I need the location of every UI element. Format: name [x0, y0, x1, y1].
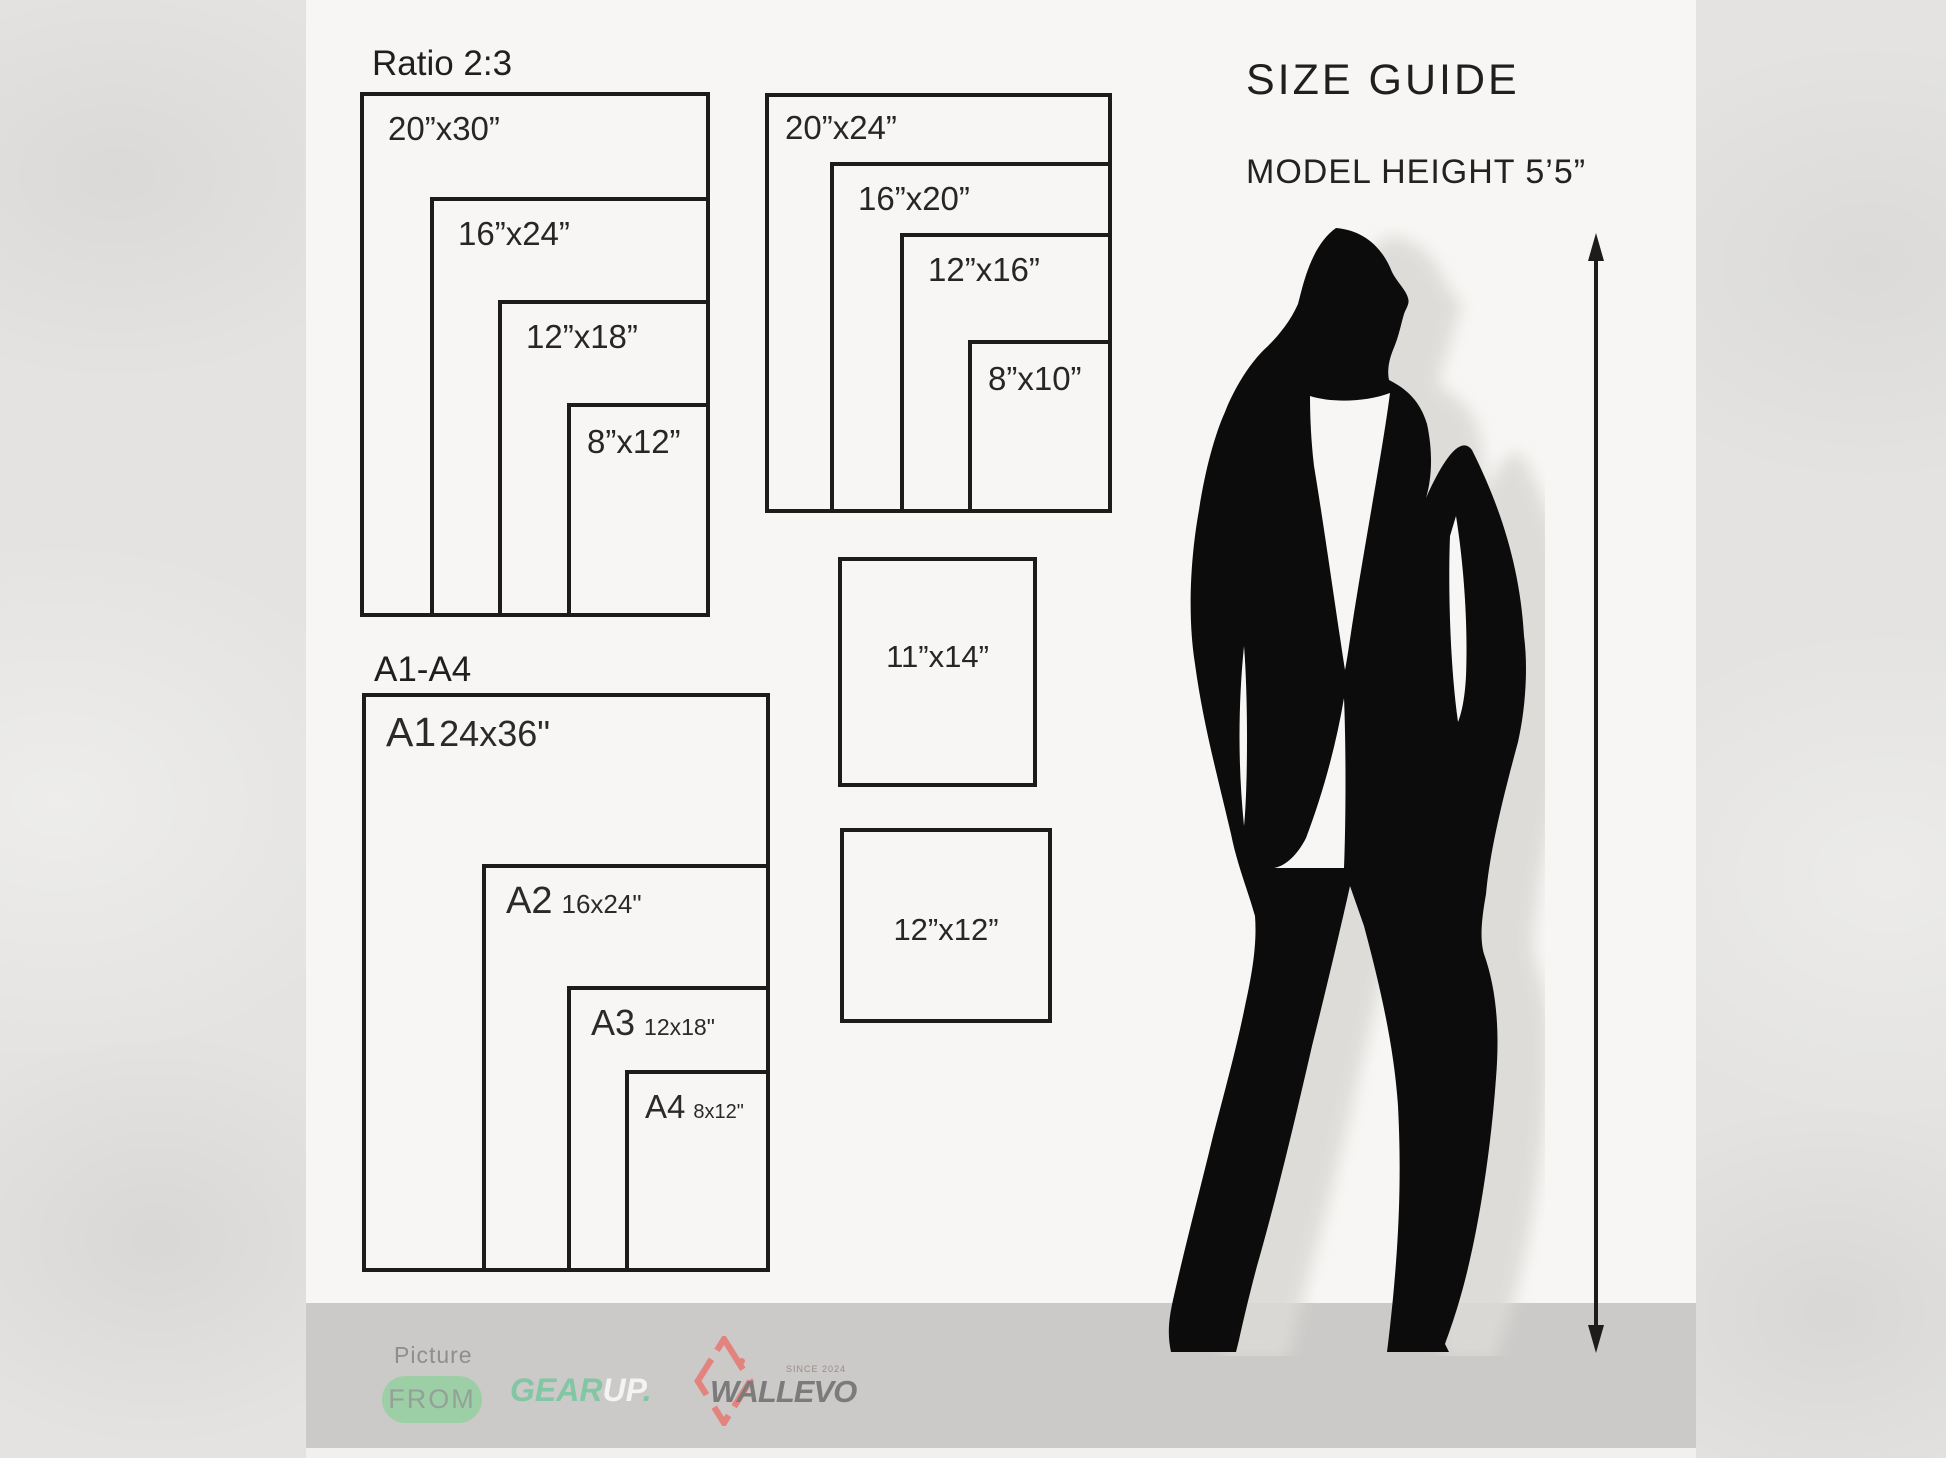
rect-20x24-label: 20”x24” — [785, 109, 897, 147]
rect-8x10-label: 8”x10” — [988, 360, 1082, 398]
rect-12x18-label: 12”x18” — [526, 318, 638, 356]
wallevo-since-label: SINCE 2024 — [710, 1364, 846, 1374]
a4-code: A4 — [645, 1088, 685, 1126]
rect-a2-label: A2 16x24" — [506, 880, 642, 923]
model-silhouette-svg — [1150, 226, 1545, 1356]
from-pill-text: FROM — [388, 1384, 475, 1415]
a1-code: A1 — [386, 709, 436, 756]
model-silhouette — [1150, 226, 1545, 1356]
arrow-down-icon — [1588, 1325, 1604, 1353]
rect-12x12-label: 12”x12” — [844, 912, 1048, 948]
rect-8x10: 8”x10” — [968, 340, 1112, 513]
arrow-line — [1594, 253, 1598, 1333]
a4-size: 8x12" — [693, 1101, 743, 1124]
gearup-logo: GEARUP. — [510, 1372, 652, 1409]
rect-12x16-label: 12”x16” — [928, 251, 1040, 289]
ratio-group-title: Ratio 2:3 — [372, 44, 512, 84]
rect-a1-label: A1 24x36" — [386, 709, 550, 756]
a-group-title: A1-A4 — [374, 650, 471, 690]
rect-a4: A4 8x12" — [625, 1070, 770, 1272]
gearup-logo-gear: GEAR — [510, 1372, 602, 1408]
rect-11x14: 11”x14” — [838, 557, 1037, 787]
rect-16x20-label: 16”x20” — [858, 180, 970, 218]
picture-label: Picture — [394, 1342, 473, 1369]
a3-size: 12x18" — [644, 1014, 715, 1041]
rect-8x12: 8”x12” — [567, 403, 710, 617]
wallevo-logo: SINCE 2024 WALLEVO — [694, 1336, 854, 1432]
rect-12x12: 12”x12” — [840, 828, 1052, 1023]
size-guide-title: SIZE GUIDE — [1246, 56, 1520, 105]
a3-code: A3 — [591, 1002, 635, 1044]
rect-8x12-label: 8”x12” — [587, 423, 681, 461]
rect-16x24-label: 16”x24” — [458, 215, 570, 253]
footer-bottom-strip — [306, 1448, 1696, 1458]
a1-size: 24x36" — [439, 713, 550, 755]
from-pill-badge: FROM — [382, 1376, 482, 1423]
rect-a4-label: A4 8x12" — [645, 1088, 744, 1126]
model-height-label: MODEL HEIGHT 5’5” — [1246, 153, 1586, 192]
wallevo-name: WALLEVO — [710, 1374, 850, 1410]
height-measure-arrow — [1588, 233, 1604, 1353]
silhouette-body — [1169, 228, 1526, 1352]
a2-size: 16x24" — [561, 889, 641, 920]
gearup-logo-dot: . — [643, 1372, 652, 1408]
wallevo-text-block: SINCE 2024 WALLEVO — [710, 1364, 850, 1410]
a2-code: A2 — [506, 880, 552, 923]
gearup-logo-up: UP — [602, 1372, 642, 1408]
rect-a3-label: A3 12x18" — [591, 1002, 715, 1044]
rect-20x30-label: 20”x30” — [388, 110, 500, 148]
rect-11x14-label: 11”x14” — [842, 639, 1033, 675]
